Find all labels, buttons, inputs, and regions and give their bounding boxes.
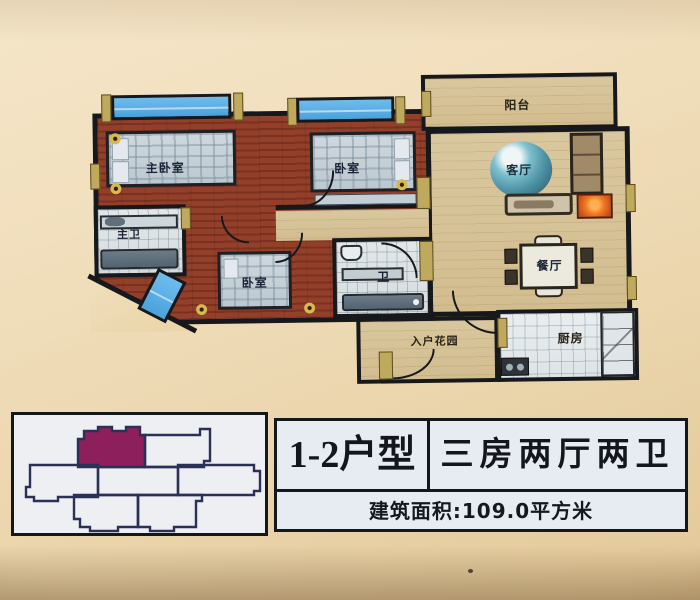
bath-tub (342, 293, 424, 311)
label-balcony: 阳台 (504, 96, 530, 113)
column-dot (110, 183, 121, 194)
wall-accent (101, 94, 111, 122)
wall-accent (419, 241, 434, 281)
masterbath-tub (100, 248, 178, 269)
dining-chair (580, 248, 593, 263)
wall-accent (421, 91, 431, 117)
sofa (570, 132, 604, 194)
photo-speck (468, 569, 473, 573)
info-table-row1: 1-2户型 三房两厅两卫 (277, 421, 685, 489)
unit-type-cell: 1-2户型 (277, 421, 430, 489)
label-bedroom2: 卧室 (334, 159, 360, 176)
stove (501, 358, 529, 376)
wall-accent (627, 276, 637, 300)
tv (577, 193, 613, 219)
key-plan (11, 412, 268, 536)
key-plan-unit-highlight (78, 427, 145, 467)
column-dot (110, 133, 121, 144)
dining-chair (505, 270, 518, 285)
label-kitchen: 厨房 (557, 329, 583, 346)
wall-accent (416, 177, 430, 209)
label-bedroom3: 卧室 (242, 274, 268, 291)
dining-chair (581, 269, 594, 284)
label-master-bedroom: 主卧室 (146, 159, 185, 177)
bed-bedroom2-rail (315, 193, 417, 205)
column-dot (304, 302, 315, 313)
key-plan-drawing (14, 415, 265, 533)
column-dot (396, 179, 407, 190)
wall-accent (90, 163, 100, 189)
masterbath-sink (105, 217, 125, 226)
area-cell: 建筑面积:109.0平方米 (277, 489, 685, 529)
label-entry-garden: 入户花园 (410, 332, 458, 349)
wall-accent (497, 318, 507, 348)
label-dining-room: 餐厅 (536, 257, 562, 274)
window-master-bedroom (111, 94, 231, 121)
info-table: 1-2户型 三房两厅两卫 建筑面积:109.0平方米 (274, 418, 688, 532)
wall-accent (625, 184, 635, 212)
wall-accent (181, 207, 191, 229)
label-living-room: 客厅 (506, 161, 532, 178)
coffee-table (505, 193, 573, 216)
floorplan-photo: 主卧室 卧室 卧室 主卫 卫 阳台 客厅 餐厅 厨房 入户花园 1-2户型 (0, 0, 700, 600)
label-bath: 卫 (377, 268, 390, 285)
layout-cell: 三房两厅两卫 (430, 421, 685, 489)
dining-chair (504, 249, 517, 264)
kitchen-counter (600, 311, 635, 376)
wall-accent (233, 92, 243, 120)
bath-toilet (340, 245, 362, 261)
window-bedroom2 (296, 96, 394, 122)
wall-accent (395, 96, 405, 124)
label-master-bath: 主卫 (117, 226, 141, 242)
wall-accent (379, 351, 393, 379)
bath-counter (342, 267, 404, 281)
column-dot (196, 304, 207, 315)
